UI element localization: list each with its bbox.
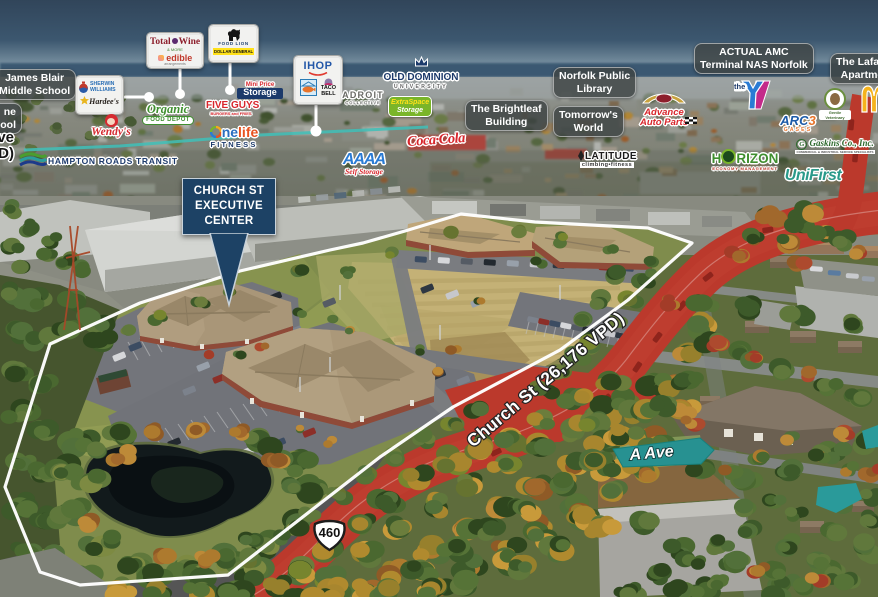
svg-text:the: the [734, 82, 745, 91]
svg-text:460: 460 [319, 525, 341, 540]
